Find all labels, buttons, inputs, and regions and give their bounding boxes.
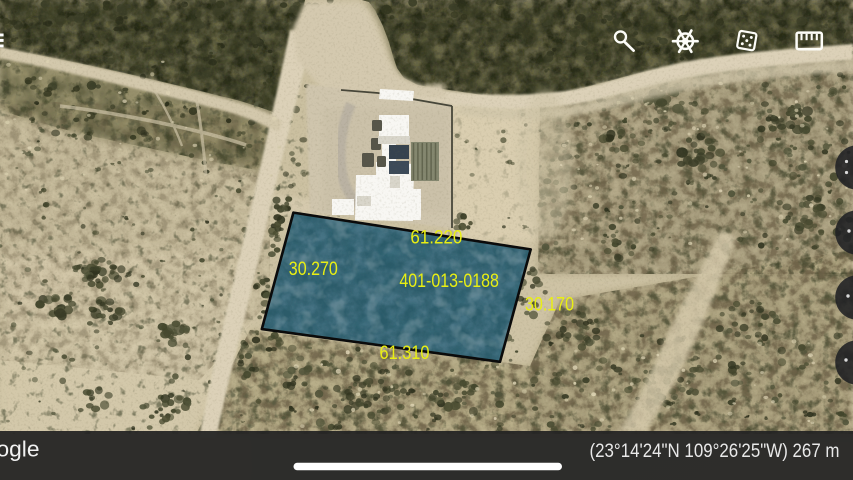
svg-text:ogle: ogle [0, 437, 40, 462]
svg-text:30.270: 30.270 [289, 258, 338, 280]
svg-text:61.310: 61.310 [380, 342, 430, 364]
svg-text:401-013-0188: 401-013-0188 [399, 270, 499, 292]
svg-text:30.170: 30.170 [525, 294, 574, 316]
svg-text:61.220: 61.220 [410, 227, 462, 249]
svg-text:(23°14'24"N 109°26'25"W) 267 m: (23°14'24"N 109°26'25"W) 267 m [590, 441, 840, 462]
